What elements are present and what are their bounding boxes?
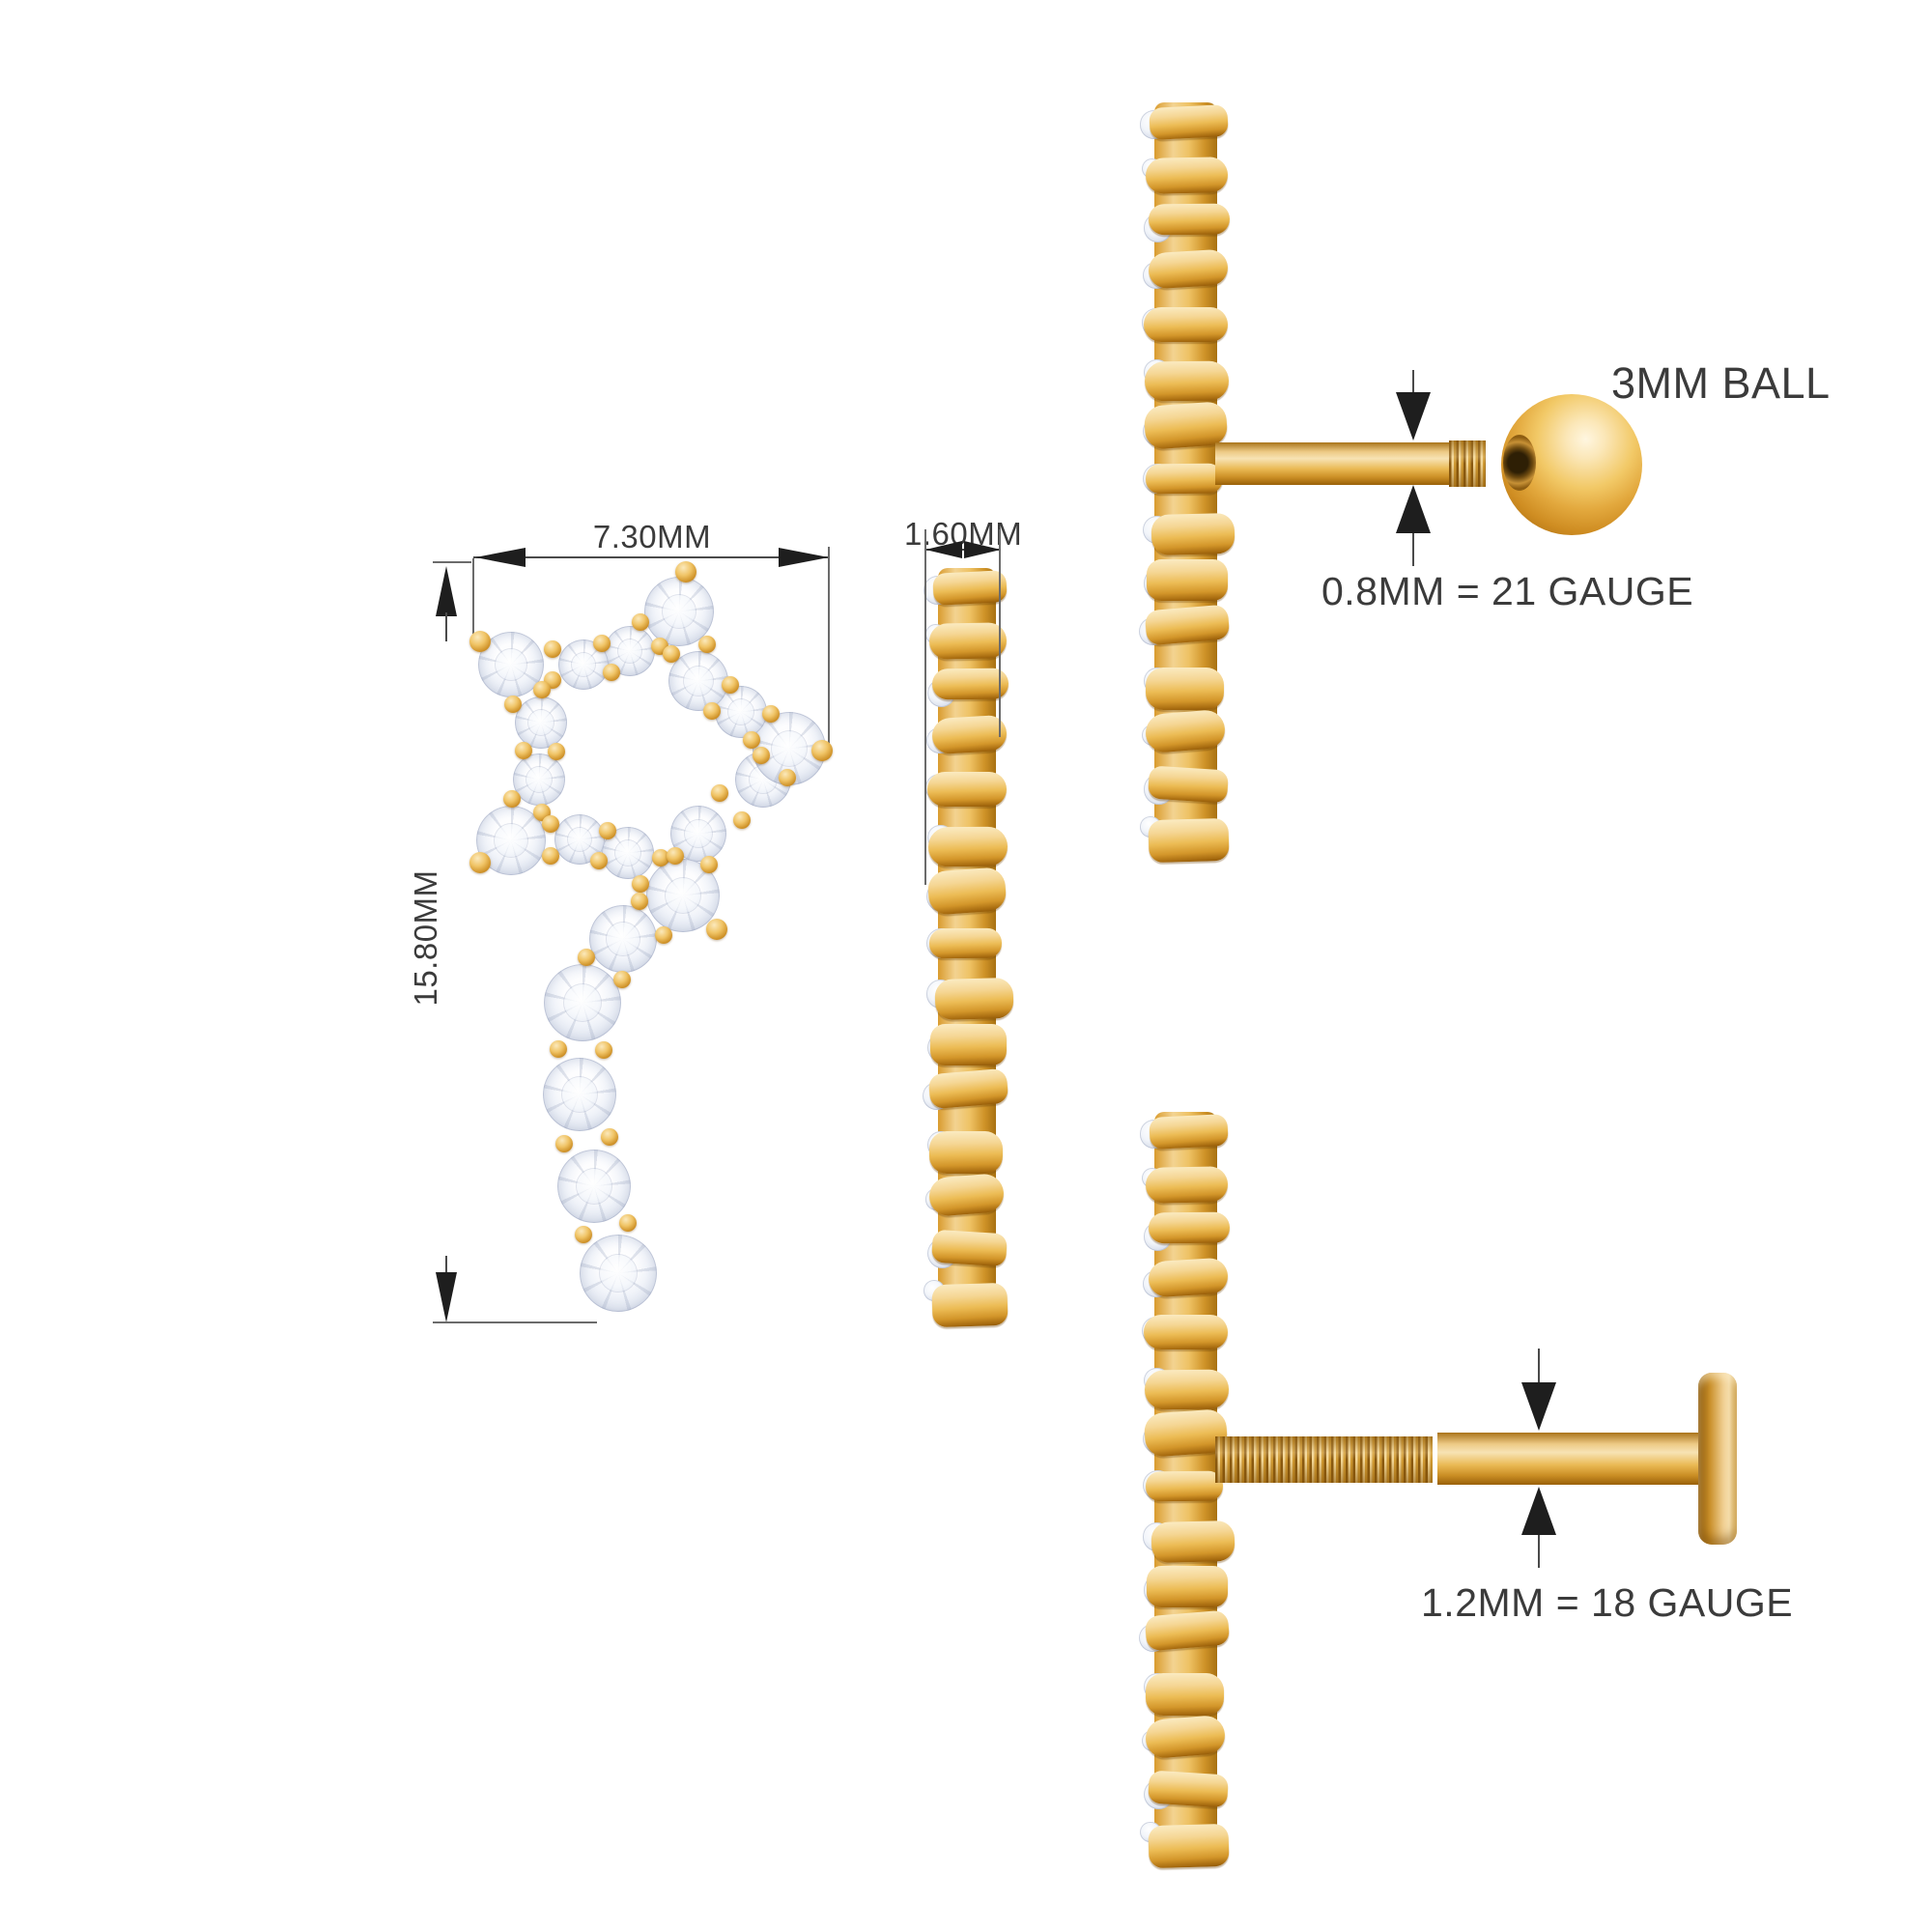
gold-fin [932,668,1009,700]
prong-dot [578,949,595,966]
gold-fin [929,1131,1003,1175]
gold-fin [932,1282,1009,1326]
prong-dot [548,743,565,760]
prong-dot [603,664,620,681]
gold-fin [1146,1673,1224,1717]
height-arrow-up [436,566,457,616]
post-thread-tip [1449,440,1486,487]
diagram-canvas: { "page": { "background": "#ffffff" }, "… [0,0,1932,1932]
prong-dot [619,1214,637,1232]
gold-fin [927,1068,1008,1109]
depth-arrow-left [925,541,962,558]
gold-fin [1147,1566,1228,1607]
prong-dot [703,702,721,720]
gold-fin [931,715,1008,754]
height-extension-bottom [433,1321,597,1323]
prong-dot [575,1226,592,1243]
prong-dot [733,811,751,829]
prong-dot [706,919,727,940]
threaded-rod [1215,1436,1433,1483]
gold-fin [1149,1114,1228,1150]
prong-dot [469,631,491,652]
gold-fin [1145,1369,1229,1409]
gold-fin [1146,464,1224,495]
labret-flat-back [1698,1373,1737,1545]
gold-fin [935,978,1014,1020]
height-dimension-label: 15.80MM [408,869,444,1006]
gold-fin [1151,513,1236,555]
prong-dot [753,747,770,764]
gauge12-arrow-down [1521,1382,1556,1431]
gauge08-label: 0.8MM = 21 GAUGE [1321,569,1693,614]
prong-dot [593,635,611,652]
gold-fin [1149,1824,1230,1868]
gold-fin [926,867,1006,916]
gauge08-line-bottom [1412,533,1414,566]
prong-dot [544,640,561,658]
width-arrow-left [475,548,526,567]
gold-fin [1144,1610,1229,1652]
prong-dot [722,676,739,694]
prong-dot [632,613,649,631]
gauge12-arrow-up [1521,1487,1556,1535]
gold-fin [1151,1520,1236,1562]
labret-post [1437,1433,1704,1485]
depth-extension-left [924,529,926,885]
prong-dot [700,856,718,873]
gold-fin [1149,203,1230,235]
prong-dot [711,784,728,802]
prong-dot [613,971,631,988]
gold-fin [931,1230,1008,1267]
gold-fin [1144,604,1229,645]
gauge12-label: 1.2MM = 18 GAUGE [1421,1580,1793,1626]
gauge08-arrow-down [1396,392,1431,440]
prong-dot [533,681,551,698]
prong-dot [631,893,648,910]
gauge08-arrow-up [1396,485,1431,533]
height-extension-top [433,561,471,563]
prong-dot [632,875,649,893]
gold-fin [1146,668,1224,711]
width-extension-left [472,558,474,636]
gold-fin [927,772,1007,807]
prong-dot [550,1040,567,1058]
gold-fin [1148,1771,1229,1808]
gold-fin [1144,307,1228,342]
height-dimension-line-top [445,612,447,641]
diamond-stone [557,1150,631,1223]
ball-size-label: 3MM BALL [1611,358,1831,409]
gold-fin [1146,1166,1229,1204]
gold-fin [1146,1471,1224,1502]
gold-fin [930,1024,1007,1065]
width-dimension-label: 7.30MM [541,519,763,555]
gold-fin [1144,1315,1228,1350]
prong-dot [595,1041,612,1059]
prong-dot [655,926,672,944]
gold-fin [1145,361,1229,402]
gold-fin [1148,765,1229,803]
diamond-stone [513,753,565,806]
width-extension-right [828,547,830,748]
depth-extension-right [999,529,1001,737]
width-dimension-line [473,556,829,558]
diamond-stone [544,964,621,1041]
depth-arrow-right [964,541,1001,558]
diamond-stone [515,696,567,749]
prong-dot [663,645,680,663]
gold-fin [932,571,1007,606]
prong-dot [555,1135,573,1152]
gold-fin [1149,1212,1230,1244]
post-side-view-top [1147,97,1219,860]
diamond-stone [589,905,657,973]
prong-dot [811,740,833,761]
ball-thread-hole [1503,435,1536,491]
earring-post [1215,442,1451,485]
prong-dot [601,1128,618,1146]
prong-dot [743,731,760,749]
prong-dot [503,790,521,808]
prong-dot [542,847,559,865]
gauge12-line-top [1538,1349,1540,1383]
gold-fin [929,928,1003,959]
diamond-stone [543,1058,616,1131]
gold-fin [928,826,1008,867]
prong-dot [698,636,716,653]
width-arrow-right [779,548,829,567]
gold-fin [1144,1715,1226,1760]
side-profile-view [930,562,998,1323]
diamond-stone [580,1235,657,1312]
gold-fin [1148,249,1229,289]
gold-fin [1149,104,1228,140]
height-arrow-down [436,1272,457,1322]
post-side-view-bottom [1147,1106,1219,1864]
prong-dot [675,561,696,582]
gold-fin [1144,709,1226,754]
prong-dot [667,847,684,865]
gold-fin [1148,1258,1229,1297]
gold-fin [1147,559,1228,601]
gauge12-line-bottom [1538,1535,1540,1568]
gold-fin [929,622,1008,660]
gold-fin [1146,156,1229,194]
gold-fin [1149,818,1230,863]
prong-dot [469,852,491,873]
